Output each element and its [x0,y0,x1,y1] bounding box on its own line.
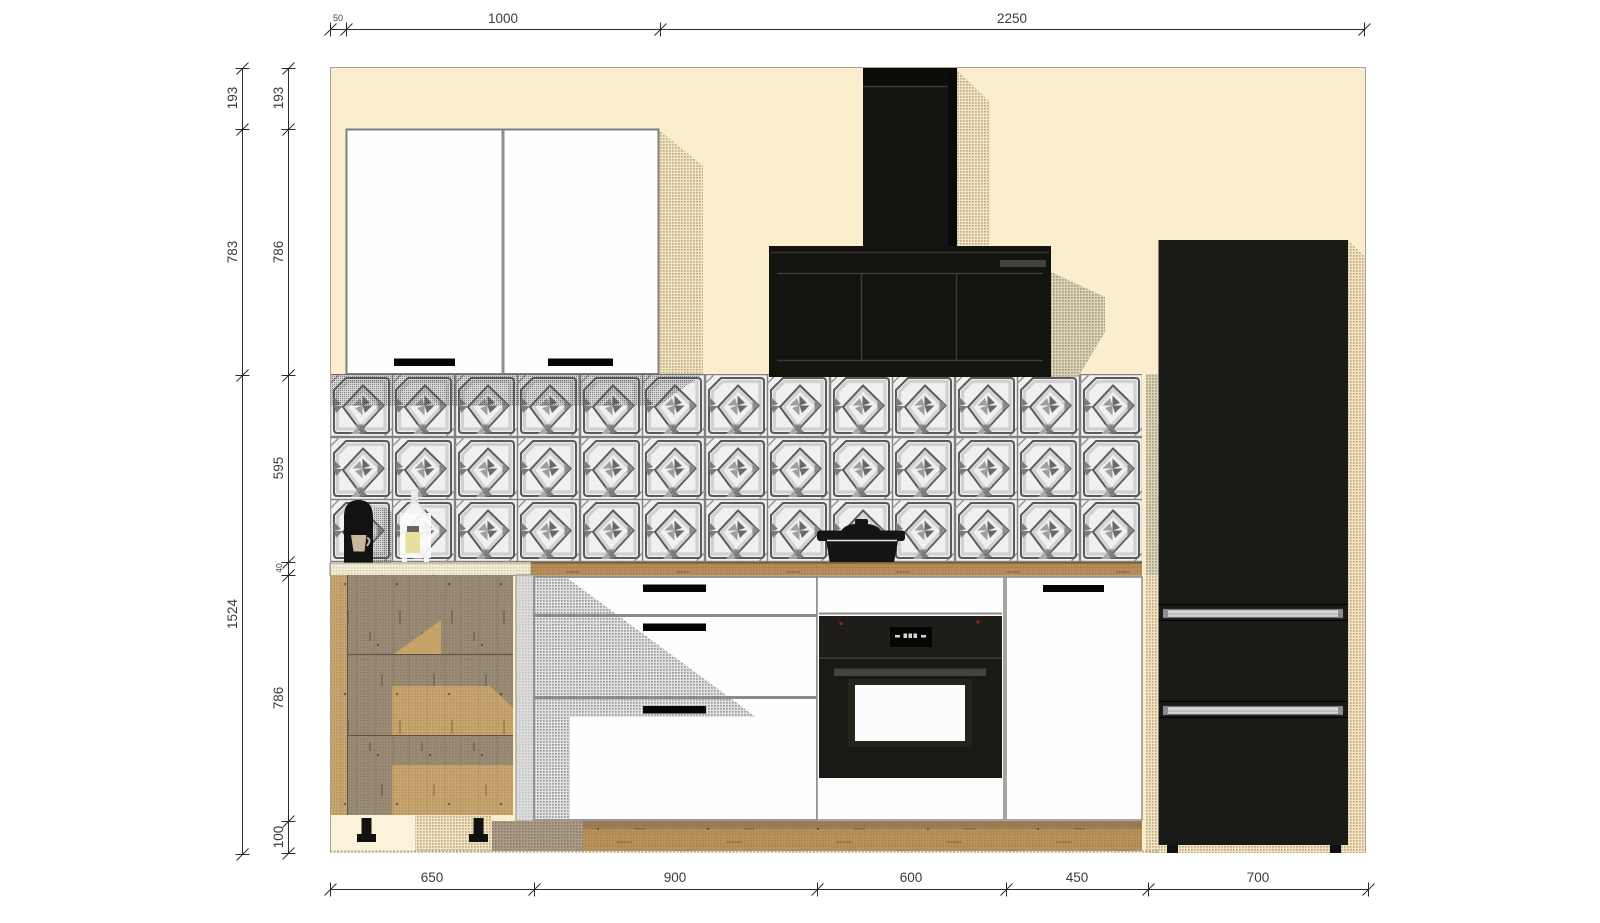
svg-text:100: 100 [271,826,286,849]
svg-text:786: 786 [271,241,286,264]
svg-text:1000: 1000 [488,11,518,26]
svg-text:600: 600 [900,870,923,885]
svg-text:450: 450 [1066,870,1089,885]
svg-text:50: 50 [333,13,343,23]
svg-text:193: 193 [225,87,240,110]
svg-text:2250: 2250 [997,11,1027,26]
svg-text:193: 193 [271,87,286,110]
svg-text:786: 786 [271,687,286,710]
svg-text:650: 650 [421,870,444,885]
svg-text:700: 700 [1247,870,1270,885]
svg-text:1524: 1524 [225,598,240,629]
svg-text:900: 900 [664,870,687,885]
svg-text:783: 783 [225,241,240,264]
svg-text:40: 40 [274,563,284,573]
svg-text:595: 595 [271,457,286,480]
